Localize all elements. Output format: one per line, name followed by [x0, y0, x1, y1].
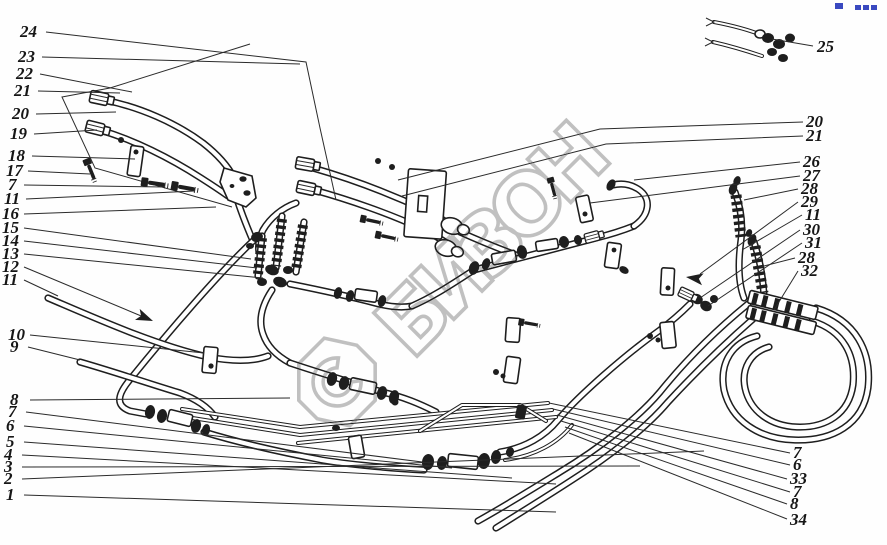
pipe-clamp — [503, 356, 520, 384]
pipe-clamp — [202, 346, 218, 373]
leader-line — [744, 189, 798, 200]
part-number-label: 32 — [800, 261, 819, 280]
leader-line — [30, 398, 290, 400]
pipe-nut — [85, 120, 111, 137]
leader-line — [30, 335, 204, 353]
part-number-label: 34 — [789, 510, 807, 529]
pipe-clamp — [660, 268, 674, 296]
bolt — [359, 215, 383, 227]
leader-line — [28, 347, 80, 360]
watermark-logo — [280, 325, 393, 438]
bolt — [141, 177, 169, 190]
pipe-nut — [296, 180, 322, 197]
leader-line — [634, 162, 800, 180]
bolt — [82, 157, 99, 183]
part-number-label: 19 — [10, 124, 28, 143]
leader-line — [38, 91, 120, 93]
scanned-parts-diagram-page: 2423222120191817711161514131211109876543… — [0, 0, 887, 545]
leader-line — [590, 176, 800, 203]
pipe-clamp — [348, 435, 365, 459]
part-number-label: 20 — [11, 104, 30, 123]
pipe-nut — [677, 287, 698, 304]
part-number-label: 1 — [6, 485, 15, 504]
leader-line — [26, 191, 194, 199]
part-number-label: 24 — [19, 22, 37, 41]
bolt — [374, 231, 398, 243]
pipe-clamp — [604, 242, 621, 269]
pipe-nut — [295, 157, 321, 173]
part-number-label: 9 — [10, 337, 19, 356]
leader-line — [32, 156, 135, 159]
leader-line — [24, 207, 216, 214]
pipe-clamp — [505, 318, 521, 343]
pipe-nut — [584, 229, 605, 243]
parts-diagram-canvas: 2423222120191817711161514131211109876543… — [0, 0, 887, 545]
blue-corner-marks — [835, 3, 877, 10]
watermark: БИЗОН — [280, 108, 624, 438]
leader-line — [24, 495, 556, 512]
part-number-label: 11 — [2, 270, 18, 289]
junction-block — [220, 168, 256, 207]
leader-line — [36, 112, 116, 114]
leader-line — [24, 280, 58, 296]
part-number-label: 25 — [816, 37, 835, 56]
leader-line — [700, 202, 798, 274]
leader-line — [28, 171, 90, 174]
part-number-label: 21 — [13, 81, 31, 100]
direction-arrow — [135, 309, 155, 327]
leader-line — [40, 74, 132, 92]
bolt — [518, 318, 541, 329]
part-number-label: 21 — [805, 126, 823, 145]
pipe-clamp — [660, 321, 677, 348]
leader-line — [24, 241, 257, 268]
leader-line — [42, 57, 300, 64]
